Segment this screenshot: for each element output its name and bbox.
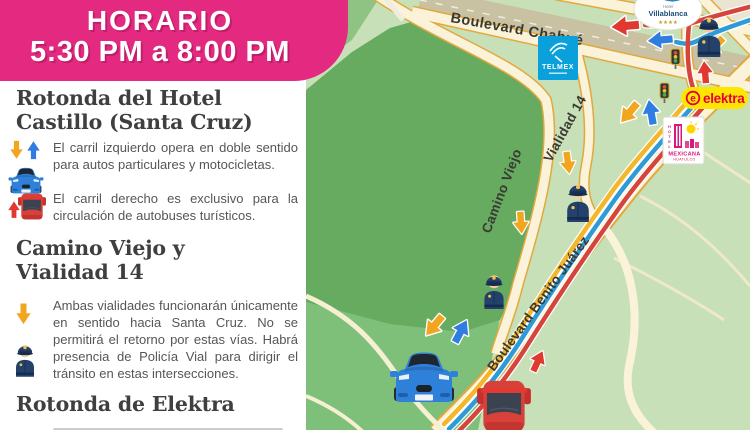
down-arrow-icon <box>8 426 46 430</box>
police-icon <box>16 345 34 377</box>
elektra-name: elektra <box>703 91 745 106</box>
traffic-infographic: Boulevard Chahué Camino Viejo Vialidad 1… <box>0 0 750 430</box>
telmex-logo-text: TELMEX <box>542 64 574 71</box>
clipped-text <box>53 426 298 430</box>
schedule-header: HORARIO 5:30 PM a 8:00 PM <box>0 0 348 81</box>
header-time-range: 5:30 PM a 8:00 PM <box>0 36 320 69</box>
heading-line: Vialidad 14 <box>16 260 144 284</box>
bus-up-icon <box>8 190 46 229</box>
section-heading-elektra: Rotonda de Elektra <box>16 392 235 416</box>
heading-line: Rotonda del Hotel <box>16 86 222 110</box>
section-heading-camino-viejo: Camino Viejo y Vialidad 14 <box>16 236 185 284</box>
elektra-mark-letter: e <box>690 94 696 105</box>
heading-line: Castillo (Santa Cruz) <box>16 110 253 134</box>
svg-text:H: H <box>668 125 671 129</box>
svg-text:E: E <box>668 140 671 144</box>
bus-icon <box>477 381 531 430</box>
villablanca-name: Villablanca <box>648 9 688 18</box>
mexicana-sun-icon <box>687 125 696 134</box>
mexicana-tower-icon <box>674 124 682 148</box>
clipped-next-row <box>8 426 298 430</box>
bus-icon <box>18 193 46 219</box>
rule-text: El carril derecho es exclusivo para la c… <box>53 190 298 229</box>
elektra-sign: e elektra <box>681 87 748 109</box>
heading-line: Camino Viejo y <box>16 236 185 260</box>
villablanca-stars: ★★★★ <box>658 19 678 26</box>
rule-text: Ambas vialidades funcionarán únicamente … <box>53 297 298 388</box>
rule-item-bus-lane: El carril derecho es exclusivo para la c… <box>8 190 298 229</box>
section-heading-hotel-castillo: Rotonda del Hotel Castillo (Santa Cruz) <box>16 86 253 134</box>
traffic-map: Boulevard Chahué Camino Viejo Vialidad 1… <box>306 0 750 430</box>
heading-line: Rotonda de Elektra <box>16 392 235 416</box>
up-arrow-icon <box>27 141 39 159</box>
down-arrow-police-icon <box>8 297 46 388</box>
down-arrow-icon <box>16 304 30 325</box>
up-arrow-icon <box>8 201 19 218</box>
mexicana-sub: HUATULCO <box>673 158 695 162</box>
down-arrow-icon <box>10 141 22 159</box>
telmex-building: TELMEX <box>538 36 578 80</box>
header-title: HORARIO <box>0 5 320 37</box>
svg-text:O: O <box>668 130 671 134</box>
hotel-mexicana-logo: H O T E L MEXICANA HUATULCO <box>663 117 704 164</box>
rule-item-one-way: Ambas vialidades funcionarán únicamente … <box>8 297 298 388</box>
